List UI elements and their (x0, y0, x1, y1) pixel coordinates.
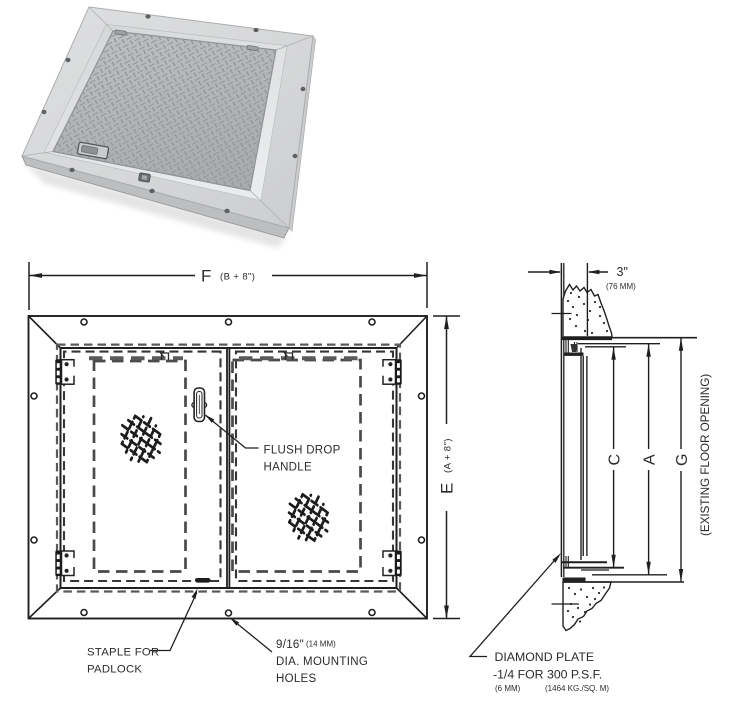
svg-text:(B + 8"): (B + 8") (220, 272, 255, 283)
svg-text:(A + 8"): (A + 8") (443, 438, 454, 473)
svg-text:DIA. MOUNTING: DIA. MOUNTING (276, 656, 368, 668)
svg-text:F: F (201, 267, 211, 286)
svg-text:(14 MM): (14 MM) (306, 640, 336, 649)
svg-text:HANDLE: HANDLE (264, 462, 312, 474)
svg-text:STAPLE FOR: STAPLE FOR (87, 647, 159, 659)
svg-text:DIAMOND PLATE: DIAMOND PLATE (495, 650, 595, 664)
svg-text:E: E (438, 483, 457, 494)
svg-text:G: G (674, 454, 691, 466)
svg-text:PADLOCK: PADLOCK (87, 664, 142, 676)
svg-text:9/16": 9/16" (276, 639, 304, 651)
svg-text:C: C (607, 454, 624, 466)
svg-text:3": 3" (617, 265, 628, 279)
svg-text:(1464 KG./SQ. M): (1464 KG./SQ. M) (545, 684, 609, 693)
svg-text:(6 MM): (6 MM) (495, 684, 521, 693)
svg-text:(EXISTING FLOOR OPENING): (EXISTING FLOOR OPENING) (698, 374, 712, 536)
svg-text:HOLES: HOLES (276, 673, 317, 685)
svg-text:FLUSH DROP: FLUSH DROP (264, 445, 341, 457)
svg-text:A: A (642, 454, 659, 465)
svg-text:-1/4 FOR 300 P.S.F.: -1/4 FOR 300 P.S.F. (493, 668, 602, 682)
svg-text:(76 MM): (76 MM) (606, 282, 636, 291)
